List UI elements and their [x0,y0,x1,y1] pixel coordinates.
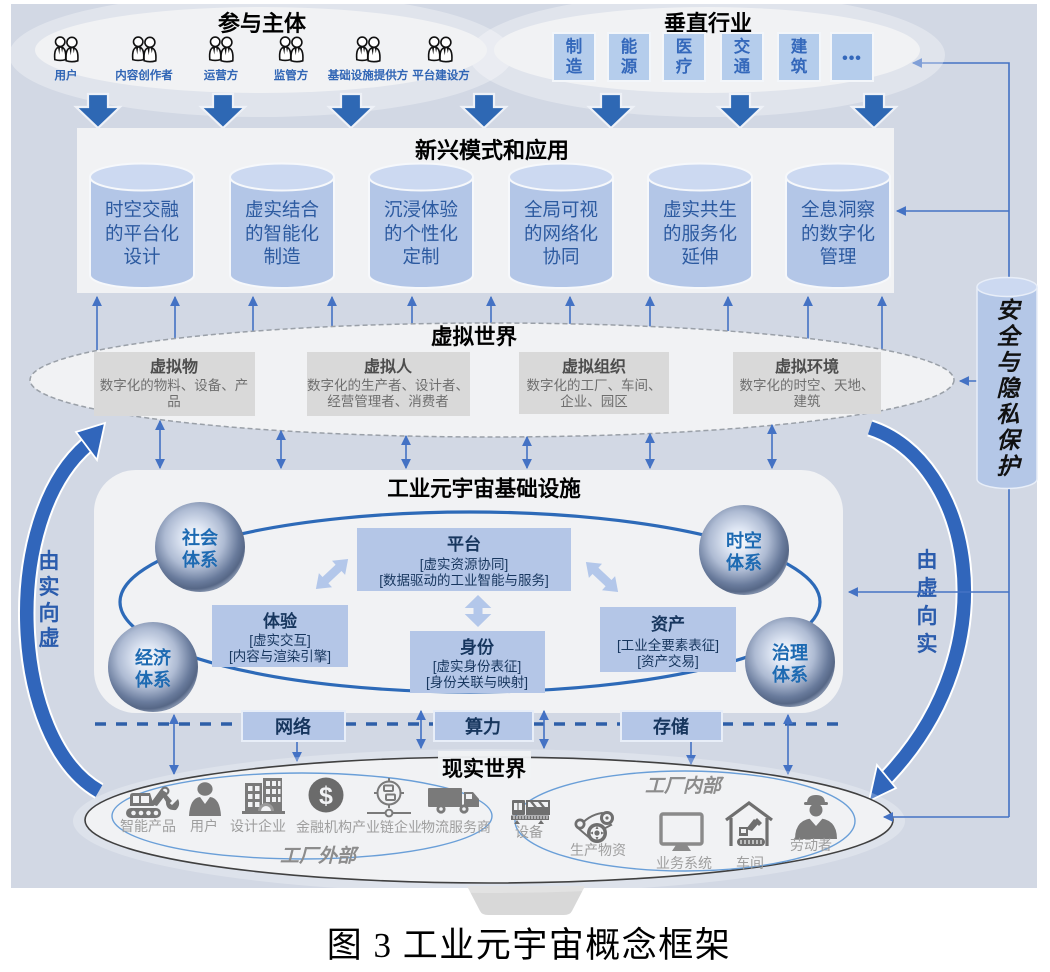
svg-text:工厂外部: 工厂外部 [280,845,360,867]
svg-text:全: 全 [997,323,1023,349]
svg-text:建筑: 建筑 [794,394,822,409]
svg-text:新兴模式和应用: 新兴模式和应用 [415,138,569,163]
svg-text:与: 与 [997,349,1022,375]
svg-text:设计: 设计 [123,246,160,267]
svg-text:[资产交易]: [资产交易] [637,653,699,669]
svg-text:数字化的工厂、车间、: 数字化的工厂、车间、 [527,377,662,393]
svg-text:社会: 社会 [182,527,218,548]
svg-text:的数字化: 的数字化 [801,223,875,244]
svg-text:网络: 网络 [275,716,311,737]
svg-text:算力: 算力 [465,716,501,737]
svg-text:监管方: 监管方 [274,68,309,82]
svg-text:资产: 资产 [651,614,685,634]
svg-text:物流服务商: 物流服务商 [421,819,491,835]
svg-text:车间: 车间 [736,855,764,871]
svg-text:•••: ••• [842,50,862,67]
svg-text:疗: 疗 [676,56,693,76]
svg-text:医: 医 [676,37,693,56]
svg-text:时空: 时空 [726,530,762,551]
svg-text:用户: 用户 [190,818,218,834]
svg-text:体验: 体验 [263,611,298,631]
svg-text:工业元宇宙基础设施: 工业元宇宙基础设施 [387,476,581,501]
svg-text:业务系统: 业务系统 [656,855,712,871]
svg-text:[虚实资源协同]: [虚实资源协同] [420,557,509,572]
svg-text:治理: 治理 [772,642,808,663]
svg-text:造: 造 [566,57,583,76]
svg-text:工厂内部: 工厂内部 [645,775,725,797]
svg-text:虚实共生: 虚实共生 [663,199,737,220]
svg-text:全局可视: 全局可视 [524,199,598,220]
svg-text:全息洞察: 全息洞察 [801,199,875,220]
svg-text:建: 建 [791,36,808,56]
svg-text:图 3 工业元宇宙概念框架: 图 3 工业元宇宙概念框架 [327,926,732,965]
svg-text:参与主体: 参与主体 [218,11,307,36]
svg-text:身份: 身份 [460,637,495,657]
svg-text:制造: 制造 [263,246,300,267]
svg-text:安: 安 [997,297,1023,323]
svg-text:实: 实 [39,575,60,599]
svg-text:设计企业: 设计企业 [230,818,286,834]
svg-text:经营管理者、消费者: 经营管理者、消费者 [327,394,449,409]
svg-text:虚实结合: 虚实结合 [245,199,319,220]
svg-text:私: 私 [997,401,1020,427]
svg-text:智能产品: 智能产品 [120,818,176,834]
svg-text:生产物资: 生产物资 [570,842,626,858]
svg-text:隐: 隐 [997,375,1022,401]
svg-text:时空交融: 时空交融 [105,199,179,220]
svg-text:[虚实交互]: [虚实交互] [249,632,311,648]
svg-text:[身份关联与映射]: [身份关联与映射] [426,675,528,690]
svg-text:虚: 虚 [917,576,938,600]
svg-text:存储: 存储 [653,716,689,737]
svg-text:源: 源 [621,56,638,76]
svg-text:[虚实身份表征]: [虚实身份表征] [433,659,522,674]
svg-text:虚拟世界: 虚拟世界 [431,324,518,349]
svg-text:产业链企业: 产业链企业 [352,819,422,835]
svg-text:企业、园区: 企业、园区 [560,393,628,409]
svg-text:内容创作者: 内容创作者 [115,68,173,82]
svg-text:筑: 筑 [791,56,808,76]
svg-text:基础设施提供方: 基础设施提供方 [327,68,409,82]
svg-text:现实世界: 现实世界 [442,757,526,781]
svg-text:虚拟人: 虚拟人 [364,357,413,376]
svg-text:平台建设方: 平台建设方 [412,68,470,82]
svg-text:定制: 定制 [402,246,439,267]
svg-text:品: 品 [167,394,181,409]
svg-text:经济: 经济 [135,647,172,668]
svg-text:平台: 平台 [447,534,481,554]
svg-text:[工业全要素表征]: [工业全要素表征] [617,637,719,653]
svg-text:数字化的物料、设备、产: 数字化的物料、设备、产 [100,377,249,393]
svg-text:虚拟组织: 虚拟组织 [562,357,626,376]
svg-text:的个性化: 的个性化 [384,223,458,244]
svg-text:设备: 设备 [515,824,543,840]
svg-text:数字化的生产者、设计者、: 数字化的生产者、设计者、 [307,378,469,393]
svg-text:由: 由 [39,549,60,573]
svg-text:金融机构: 金融机构 [296,819,352,835]
svg-text:$: $ [319,782,333,810]
svg-text:[内容与渲染引擎]: [内容与渲染引擎] [229,648,331,664]
svg-text:管理: 管理 [819,246,856,267]
svg-text:体系: 体系 [135,669,171,690]
svg-text:通: 通 [734,57,751,76]
svg-text:由: 由 [917,548,938,572]
svg-text:实: 实 [917,632,938,656]
svg-text:体系: 体系 [772,664,808,685]
svg-text:劳动者: 劳动者 [790,837,832,853]
svg-text:虚拟物: 虚拟物 [150,357,198,376]
svg-text:的网络化: 的网络化 [524,223,598,244]
svg-text:数字化的时空、天地、: 数字化的时空、天地、 [740,378,875,393]
svg-text:[数据驱动的工业智能与服务]: [数据驱动的工业智能与服务] [379,573,549,588]
svg-text:虚拟环境: 虚拟环境 [775,357,839,376]
svg-text:运营方: 运营方 [204,68,239,82]
svg-text:协同: 协同 [542,246,579,267]
svg-text:向: 向 [917,604,938,628]
svg-text:沉浸体验: 沉浸体验 [384,199,458,220]
svg-text:的平台化: 的平台化 [105,223,179,244]
svg-text:护: 护 [997,453,1023,479]
svg-text:体系: 体系 [182,549,218,570]
svg-text:制: 制 [566,36,583,56]
svg-text:能: 能 [621,36,638,56]
svg-text:保: 保 [997,427,1023,453]
svg-text:交: 交 [734,36,751,56]
svg-text:的服务化: 的服务化 [663,223,737,244]
svg-text:用户: 用户 [54,68,78,82]
svg-text:体系: 体系 [726,552,762,573]
svg-text:虚: 虚 [39,626,60,650]
svg-text:的智能化: 的智能化 [245,223,319,244]
svg-text:延伸: 延伸 [681,246,718,267]
svg-text:向: 向 [39,601,60,625]
